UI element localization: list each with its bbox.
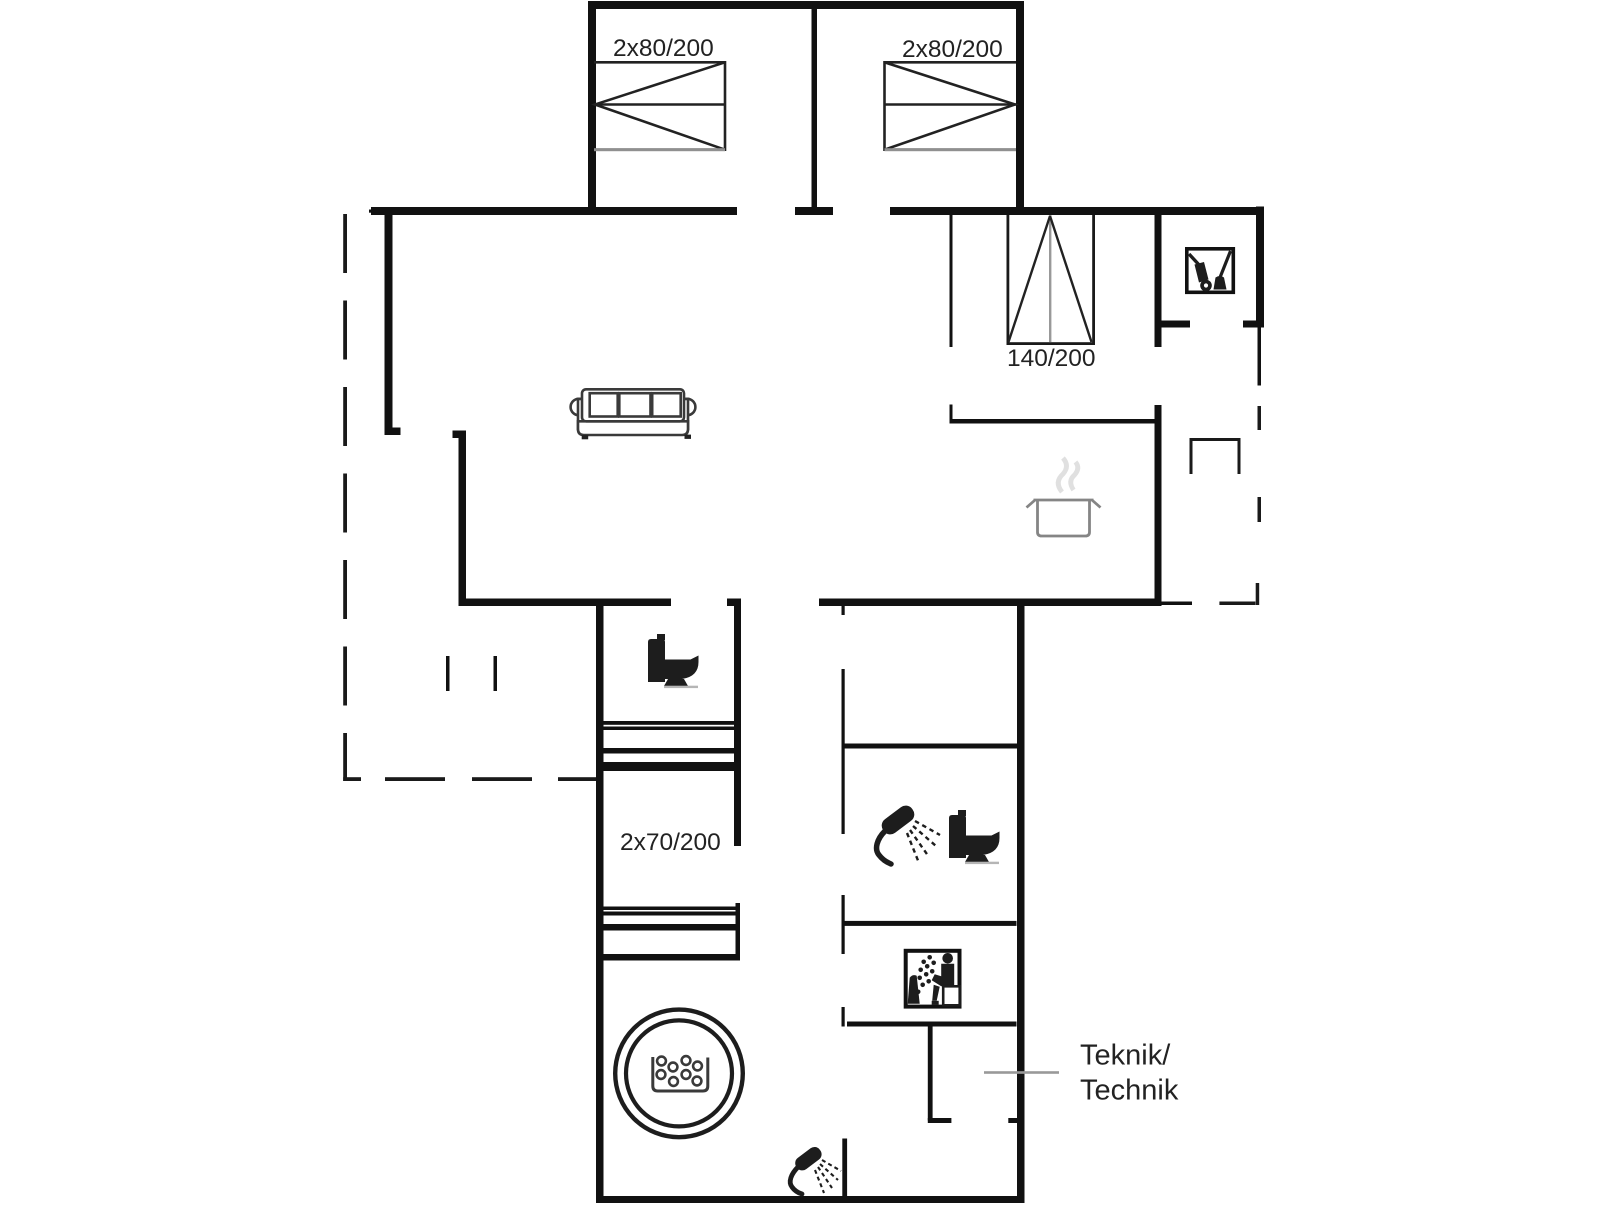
svg-text:2x80/200: 2x80/200 [613, 35, 714, 62]
svg-text:2x70/200: 2x70/200 [620, 829, 721, 856]
svg-text:Teknik/: Teknik/ [1080, 1040, 1171, 1072]
svg-text:Technik: Technik [1080, 1075, 1179, 1107]
svg-text:140/200: 140/200 [1007, 345, 1096, 372]
svg-text:2x80/200: 2x80/200 [902, 36, 1003, 63]
